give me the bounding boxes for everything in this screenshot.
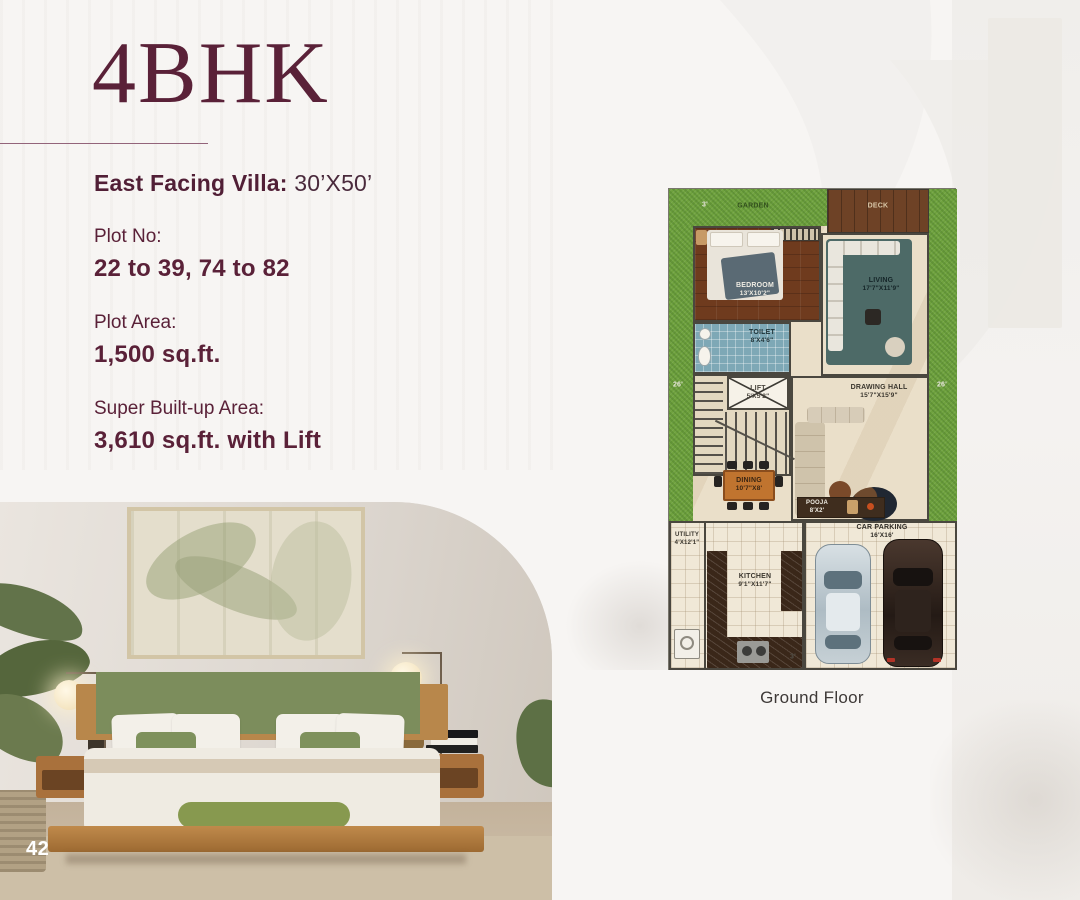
plot-no-label: Plot No: [94,226,321,248]
pooja-label: POOJA 8'X2' [806,499,828,515]
super-builtup-value: 3,610 sq.ft. with Lift [94,427,321,455]
wooden-bed-platform [48,826,484,852]
kitchen-counter-left [707,551,727,639]
faint-bed-watermark [930,700,1080,900]
coffee-table [865,309,881,325]
bedroom-name: BEDROOM [736,282,774,289]
kitchen-name: KITCHEN [739,573,772,580]
sofa-cushions-left [828,241,843,351]
toilet-name: TOILET [749,329,775,336]
living-size: 17'7"X11'9" [862,285,899,294]
bedroom-size: 13'X10'2" [736,290,774,299]
deck-area [827,189,929,233]
burner [756,646,766,656]
art-palm-shape [263,516,359,646]
subtitle-label: East Facing Villa: [94,170,288,196]
lift-label: LIFT 5'X5'2" [747,384,770,402]
dimension-right: 26' [937,380,947,389]
floor-plan-caption: Ground Floor [668,688,956,708]
living-name: LIVING [869,277,894,284]
pillow-top-view [747,232,780,247]
dining-chair [727,502,737,510]
grass-strip-left [669,189,693,521]
dining-name: DINING [736,477,762,484]
stairs-side-flight [695,376,723,474]
plot-no-value: 22 to 39, 74 to 82 [94,255,321,283]
drawing-hall-size: 15'7"X15'9" [851,392,908,401]
dining-chair [759,502,769,510]
utility-size: 4'X12'1" [675,539,700,547]
car-roof [895,590,931,632]
plot-area-label: Plot Area: [94,312,321,334]
villa-subtitle: East Facing Villa: 30’X50’ [94,170,372,197]
car-parking-name: CAR PARKING [856,524,907,531]
duvet-stripe [84,759,440,773]
car-taillight [933,658,941,662]
deity-idol [847,500,858,514]
grass-strip-right [929,189,957,521]
brochure-page: 4BHK East Facing Villa: 30’X50’ Plot No:… [0,0,1080,900]
kitchen-label: KITCHEN 9'1"X11'7" [738,572,771,590]
plot-area-value: 1,500 sq.ft. [94,341,321,369]
dining-chair [743,502,753,510]
utility-wall [704,521,706,670]
drawing-hall-name: DRAWING HALL [851,384,908,391]
dimension-top: 3' [702,200,708,209]
deck-label: DECK [868,201,889,210]
dining-size: 10'7"X8' [736,485,763,494]
pooja-name: POOJA [806,500,828,506]
toilet-size: 8'X4'6" [749,337,775,346]
sofa-cushions-top [828,241,900,255]
lift-size: 5'X5'2" [747,393,770,402]
wc [698,346,711,366]
bedroom-photo: 42 [0,502,552,900]
car-taillight [887,658,895,662]
pooja-size: 8'X2' [806,507,828,515]
subtitle-value: 30’X50’ [294,170,372,196]
car-windshield [824,571,862,589]
dimension-bottom: 3' [790,652,796,661]
right-lamp-arm [402,652,442,654]
pouf [885,337,905,357]
pillow-top-view [710,232,743,247]
drawing-hall-label: DRAWING HALL 15'7"X15'9" [851,383,908,401]
car-rear-window [894,636,932,650]
detail-plot-no: Plot No: 22 to 39, 74 to 82 [94,226,321,283]
dimension-left: 26' [673,380,683,389]
detail-plot-area: Plot Area: 1,500 sq.ft. [94,312,321,369]
framed-botanical-art [127,507,365,659]
page-title: 4BHK [92,28,330,120]
utility-name: UTILITY [675,532,699,538]
living-label: LIVING 17'7"X11'9" [862,276,899,294]
washer-drum [680,636,694,650]
platform-shadow [66,854,466,864]
plot-details: Plot No: 22 to 39, 74 to 82 Plot Area: 1… [94,226,321,455]
utility-label: UTILITY 4'X12'1" [675,531,700,547]
burner [742,646,752,656]
dining-label: DINING 10'7"X8' [736,476,763,494]
detail-super-builtup: Super Built-up Area: 3,610 sq.ft. with L… [94,398,321,455]
car-roof [826,593,860,631]
car-windshield [893,568,933,586]
bedroom-label: BEDROOM 13'X10'2" [736,281,774,299]
toilet-label: TOILET 8'X4'6" [749,328,775,346]
faint-picture-watermark [988,18,1062,328]
right-watermark-band [952,0,1080,900]
page-number: 42 [26,838,49,861]
dining-chair [775,476,783,487]
floor-plan: 3' GARDEN DECK BEDROOM 13'X10'2" LIVING … [668,188,956,670]
silver-car-top-view [815,544,871,664]
dining-chair [759,461,769,469]
title-divider [0,143,208,144]
lift-name: LIFT [750,385,766,392]
dark-car-top-view [883,539,943,667]
bedside-table [696,230,707,245]
sofa-horizontal [807,407,865,423]
super-builtup-label: Super Built-up Area: [94,398,321,420]
sink [699,328,711,340]
dining-chair [743,461,753,469]
kitchen-size: 9'1"X11'7" [738,581,771,590]
kitchen-counter-right [781,551,802,611]
car-rear-window [825,635,861,649]
garden-label: GARDEN [737,201,769,210]
dining-chair [727,461,737,469]
flower-offering [867,503,874,510]
dining-chair [714,476,722,487]
green-bolster-cushion [178,802,350,828]
